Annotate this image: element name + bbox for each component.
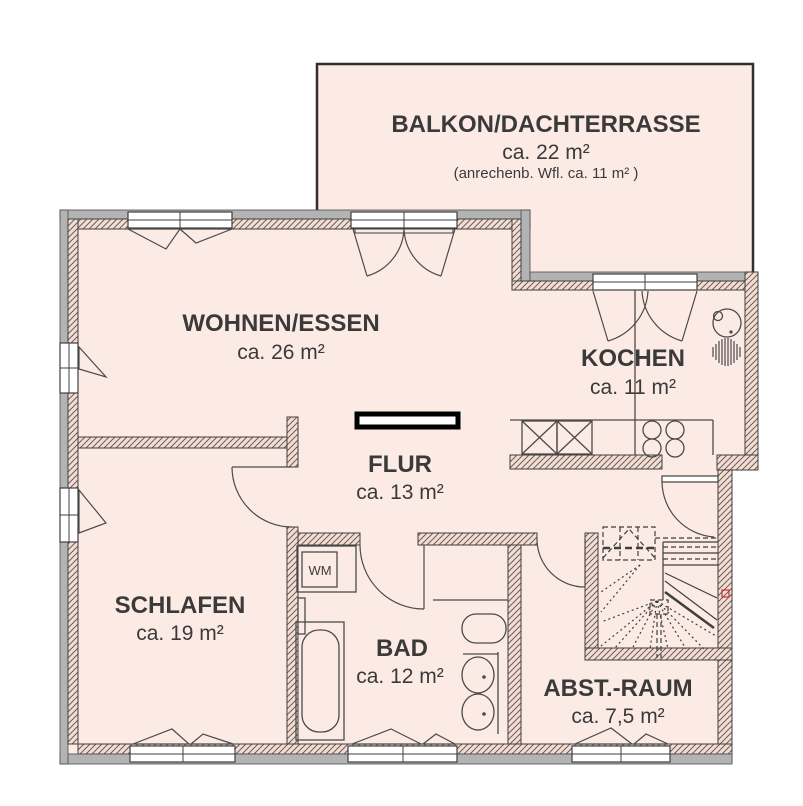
- wall-corner-piece: [717, 455, 758, 470]
- room-area-flur: ca. 13 m²: [356, 481, 444, 504]
- wall-stair-bottom: [585, 648, 732, 660]
- wall-bad-abst: [508, 545, 521, 744]
- wall-wohnen-schlafen: [78, 437, 287, 448]
- washing-machine-label: WM: [308, 563, 331, 578]
- balcony-area-label: ca. 22 m²: [502, 141, 590, 164]
- wall-step-hatch: [512, 219, 521, 290]
- wall-kitchen-bottom: [510, 455, 662, 469]
- room-area-schlafen: ca. 19 m²: [136, 622, 224, 645]
- room-label-kochen: KOCHEN: [581, 345, 685, 372]
- room-label-bad: BAD: [376, 635, 428, 662]
- wall-bad-top-right: [418, 533, 537, 545]
- room-area-bad: ca. 12 m²: [356, 665, 444, 688]
- balcony-name: BALKON/DACHTERRASSE: [391, 111, 700, 138]
- room-area-wohnen: ca. 26 m²: [237, 341, 325, 364]
- wall-right-lower: [718, 470, 732, 762]
- wall-flur-stub: [287, 417, 298, 467]
- floor-plan: BALKON/DACHTERRASSE ca. 22 m² (anrechenb…: [0, 0, 803, 806]
- room-area-kochen: ca. 11 m²: [590, 376, 676, 399]
- room-label-schlafen: SCHLAFEN: [115, 592, 246, 619]
- wall-kitchen-right: [745, 272, 758, 470]
- wall-bad-top-left: [298, 533, 360, 545]
- room-label-flur: FLUR: [368, 451, 432, 478]
- wall-left-gray: [60, 210, 68, 764]
- balcony-note: (anrechenb. Wfl. ca. 11 m² ): [454, 165, 639, 182]
- room-area-abstellraum: ca. 7,5 m²: [571, 705, 664, 728]
- wall-stair-left: [585, 533, 598, 660]
- room-label-wohnen: WOHNEN/ESSEN: [182, 310, 379, 337]
- floor-plan-drawing: BALKON/DACHTERRASSE ca. 22 m² (anrechenb…: [0, 0, 803, 806]
- wall-step-gray: [521, 210, 530, 281]
- sideboard-bar: [357, 414, 458, 427]
- room-label-abstellraum: ABST.-RAUM: [543, 675, 692, 702]
- wall-left-hatch: [68, 219, 78, 744]
